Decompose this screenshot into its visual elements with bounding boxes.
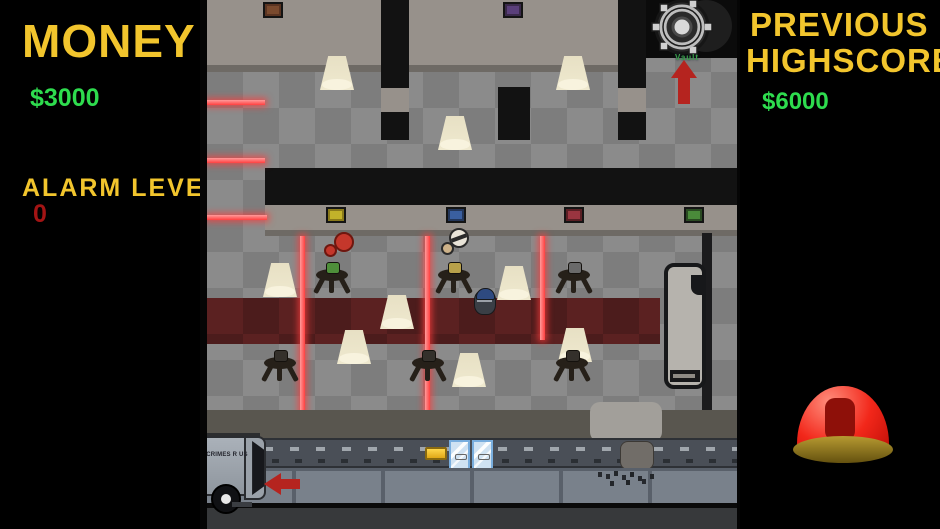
objective-arrow-shaft (678, 78, 690, 104)
objective-arrow-icon (671, 60, 697, 78)
exhibit-item (568, 262, 582, 274)
truck-bumper (232, 502, 252, 507)
debris-marks (598, 472, 602, 477)
highscore-value: $6000 (762, 88, 829, 116)
laser-beam-vertical (300, 236, 305, 426)
middle-wall-black (265, 168, 740, 205)
top-wall-shadow-right (409, 65, 618, 72)
glass-door (472, 440, 493, 470)
painting-yellow (326, 207, 346, 223)
conveyor-belt (258, 438, 740, 468)
game-viewport: Vault (200, 0, 740, 529)
truck-label: CRIMES R US (204, 452, 250, 458)
truck-wheel (211, 484, 241, 514)
money-value: $3000 (30, 84, 100, 113)
wall-column-cap (381, 88, 409, 112)
guard-red (326, 230, 356, 260)
truck-windshield (250, 441, 264, 495)
wall-column (381, 0, 409, 88)
exhibit-item (422, 350, 436, 362)
wall-column-stub (381, 112, 409, 140)
top-wall-left (207, 0, 381, 65)
display-table (434, 260, 474, 296)
painting-brown (263, 2, 283, 18)
laser-beam-horizontal (207, 158, 265, 163)
exhibit-item (326, 262, 340, 274)
display-table (552, 348, 592, 384)
gold-bar (425, 447, 447, 460)
highscore-label-line2: HIGHSCORE (746, 42, 926, 80)
exit-arrow-icon (264, 473, 281, 495)
wall-column (618, 0, 646, 88)
glass-door (449, 440, 470, 470)
display-table (260, 348, 300, 384)
laser-beam-horizontal (207, 215, 267, 220)
loot-sack (620, 441, 654, 470)
laser-beam-vertical (425, 236, 430, 426)
painting-green (684, 207, 704, 223)
exhibit-item (566, 350, 580, 362)
display-table (312, 260, 352, 296)
museum-carpet (207, 298, 660, 344)
wall-column (498, 87, 530, 140)
wall-column-stub (618, 112, 646, 140)
loading-platform (590, 402, 662, 442)
alarm-siren-base (793, 436, 893, 463)
vault-door-icon (648, 0, 734, 58)
laser-beam-horizontal (207, 100, 265, 105)
viewport-right-edge (737, 0, 740, 529)
alarm-level-label: ALARM LEVEL (22, 174, 222, 203)
painting-purple (503, 2, 523, 18)
exhibit-item (448, 262, 462, 274)
display-table (408, 348, 448, 384)
display-table (554, 260, 594, 296)
guard-white (441, 226, 471, 256)
wall-column-cap (618, 88, 646, 112)
top-wall-shadow-left (207, 65, 381, 72)
alarm-siren-inner (825, 398, 855, 441)
painting-blue (446, 207, 466, 223)
getaway-truck: CRIMES R US (202, 430, 268, 510)
exhibit-item (274, 350, 288, 362)
laser-beam-vertical (540, 236, 545, 340)
exit-arrow-shaft (281, 479, 300, 489)
player-thief (473, 288, 495, 314)
painting-red (564, 207, 584, 223)
money-label: MONEY (22, 14, 196, 68)
alarm-level-value: 0 (33, 200, 47, 229)
viewport-left-edge (200, 0, 207, 529)
highscore-label-line1: PREVIOUS (750, 6, 922, 44)
street-strip (200, 508, 740, 529)
door-top-view (664, 263, 706, 389)
game-screen: MONEY $3000 ALARM LEVEL 0 PREVIOUS HIGHS… (0, 0, 940, 529)
